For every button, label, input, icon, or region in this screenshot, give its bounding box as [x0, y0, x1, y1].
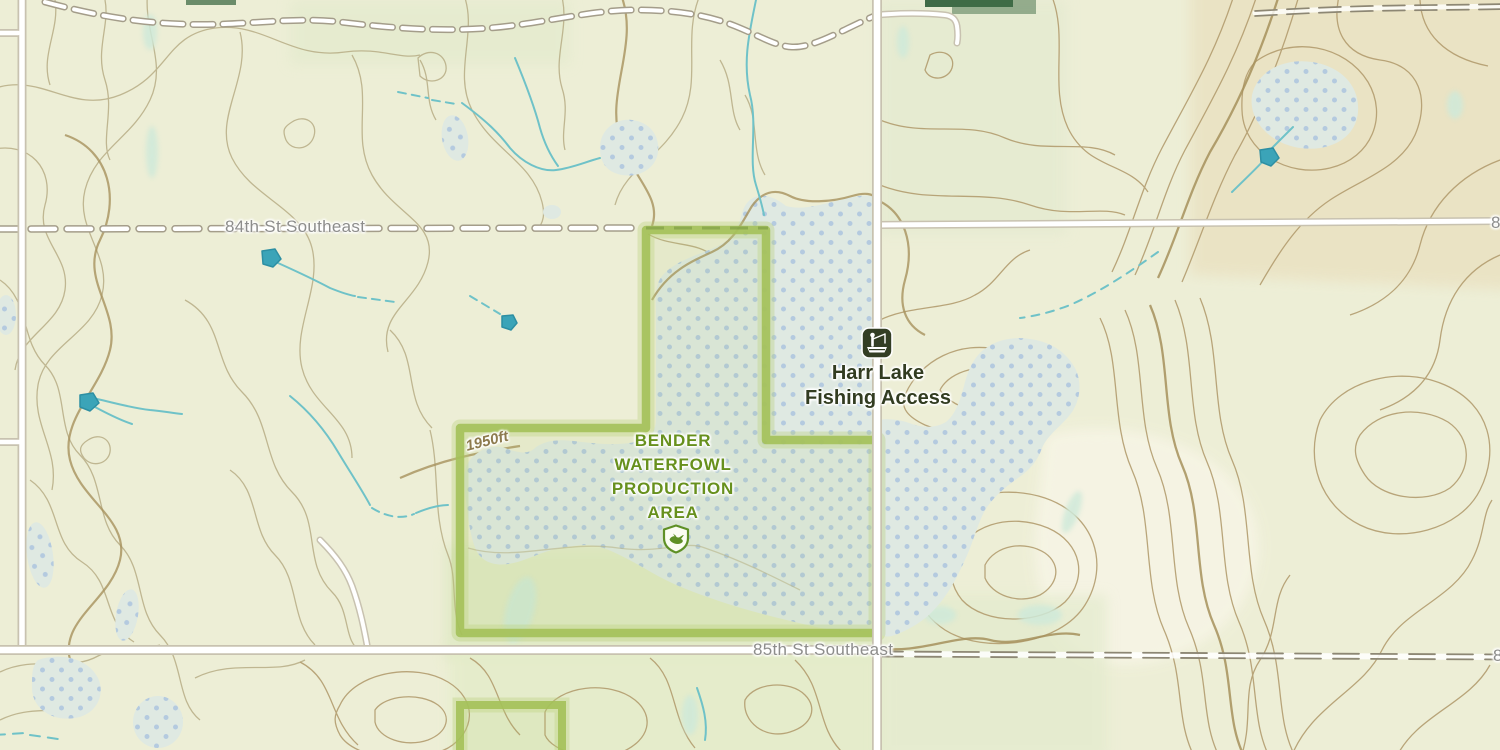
map-canvas[interactable]: 84th St Southeast 85th St Southeast 84th… — [0, 0, 1500, 750]
wpa-label: BENDER WATERFOWL PRODUCTION AREA — [563, 429, 783, 525]
poi-label-harr-lake: Harr Lake Fishing Access — [768, 361, 988, 411]
wpa-label-line3: PRODUCTION — [563, 477, 783, 501]
street-label-84th: 84th St Southeast — [225, 217, 365, 237]
wpa-label-line2: WATERFOWL — [563, 453, 783, 477]
poi-label-line2: Fishing Access — [768, 386, 988, 411]
road-84th-east — [877, 221, 1500, 225]
pond-marker — [262, 249, 281, 267]
map-layers — [0, 0, 1500, 750]
street-label-85th-partial: 85th St Southeast — [1493, 646, 1500, 666]
wpa-label-line4: AREA — [563, 501, 783, 525]
road-driveway — [320, 540, 368, 650]
pond-marker — [502, 315, 517, 330]
poi-label-line1: Harr Lake — [768, 361, 988, 386]
street-label-85th: 85th St Southeast — [753, 640, 893, 660]
wpa-label-line1: BENDER — [563, 429, 783, 453]
street-label-84th-partial: 84th St Southeast — [1491, 213, 1500, 233]
